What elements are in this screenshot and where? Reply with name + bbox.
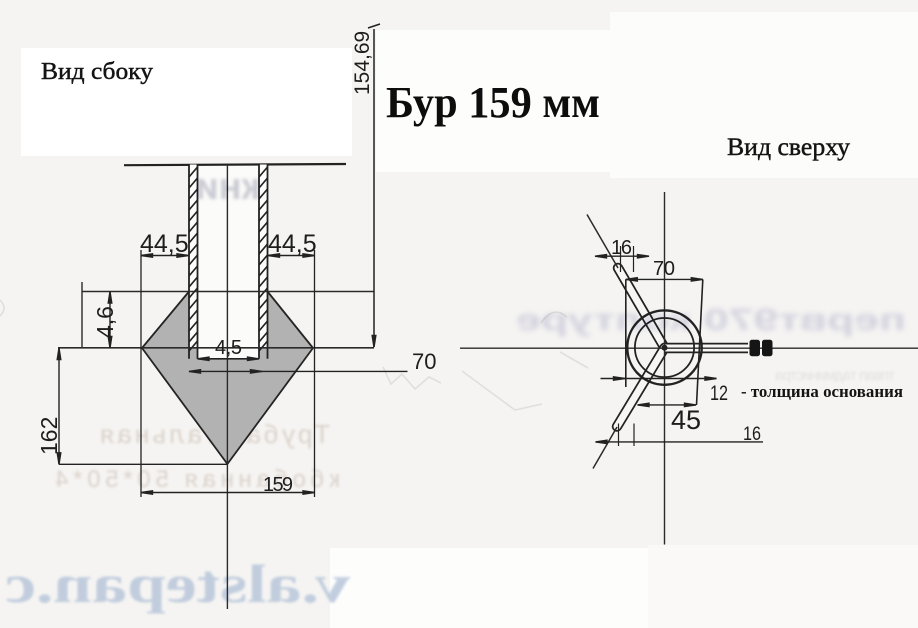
svg-text:4,5: 4,5	[215, 337, 242, 359]
svg-text:кни: кни	[195, 166, 260, 208]
svg-text:44,5: 44,5	[140, 230, 189, 258]
svg-text:44,5: 44,5	[268, 230, 317, 258]
svg-text:70: 70	[412, 349, 436, 374]
svg-text:16: 16	[611, 237, 632, 259]
svg-text:4,6: 4,6	[92, 306, 118, 338]
svg-text:Вид сверху: Вид сверху	[727, 134, 851, 161]
svg-text:Бур 159 мм: Бур 159 мм	[386, 78, 600, 127]
svg-text:16: 16	[743, 424, 761, 445]
svg-text:кбобанная 50*50*4: кбобанная 50*50*4	[55, 466, 340, 493]
svg-text:v.alstepan.c: v.alstepan.c	[5, 554, 350, 614]
svg-text:первт970 колтуре: первт970 колтуре	[516, 302, 906, 337]
svg-text:70: 70	[653, 258, 675, 280]
svg-text:162: 162	[36, 417, 62, 455]
svg-text:12: 12	[710, 382, 728, 405]
svg-text:- толщина основания: - толщина основания	[741, 382, 903, 401]
svg-text:Вид сбоку: Вид сбоку	[41, 59, 153, 85]
svg-text:159: 159	[263, 474, 293, 496]
svg-text:154,69: 154,69	[351, 31, 374, 95]
svg-text:45: 45	[671, 405, 701, 435]
